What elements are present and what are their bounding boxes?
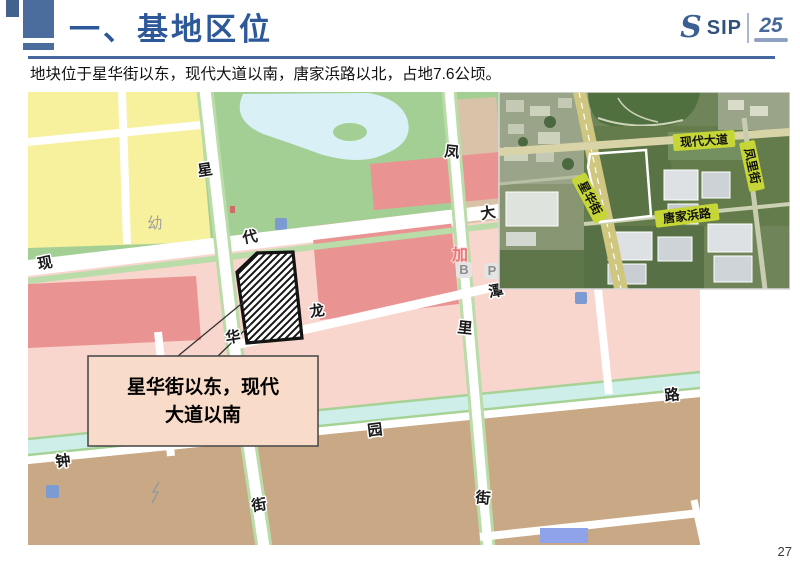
sip-logo-mark-icon: S [680, 13, 702, 43]
poi-kindergarten-label: 幼 [147, 215, 162, 232]
sip-logo-text: SIP [707, 17, 742, 40]
anniversary-underline [754, 38, 788, 42]
satellite-building [506, 232, 536, 246]
lake-island [333, 123, 367, 141]
header-rule [28, 56, 775, 59]
map-svg: B P 星华街以东，现代 大道以南 星 华 街 现 代 大 [28, 92, 790, 545]
satellite-building [506, 192, 558, 226]
anniversary-mark: 25 [754, 15, 788, 42]
street-label-xinghua-2: 华 [224, 327, 242, 347]
satellite-building [728, 100, 744, 110]
street-label-xiandai-2: 代 [240, 227, 259, 248]
zone-blue-lot [540, 528, 588, 543]
poi-dot [230, 206, 235, 213]
street-label-xiandai-1: 现 [36, 254, 54, 273]
poi-p-label: P [488, 263, 497, 278]
header-accent-bar [23, 43, 54, 50]
header-accent-square-edge [6, 0, 19, 17]
street-label-fengli-1: 凤 [444, 143, 461, 161]
street-label-fengli-3: 街 [474, 488, 492, 508]
parking-icon [46, 485, 59, 498]
satellite-field [499, 250, 589, 289]
street-label-zhongyuan-1: 钟 [54, 451, 71, 471]
callout-line1: 星华街以东，现代 [127, 375, 279, 398]
satellite-building [750, 106, 768, 116]
street-label-fengli-2: 里 [457, 319, 474, 337]
slide-subtitle: 地块位于星华街以东，现代大道以南，唐家浜路以北，占地7.6公顷。 [30, 62, 770, 84]
poi-b-label: B [459, 262, 468, 277]
header-accent-square [23, 0, 54, 38]
street-label-xiandai-3: 大 [479, 203, 497, 223]
street-label-zhongyuan-2: 园 [367, 421, 384, 440]
street-label-longtan-1: 龙 [307, 301, 326, 321]
sip-logo: S SIP 25 [680, 8, 788, 48]
site-parcel [237, 252, 302, 343]
street-label-xinghua-3: 街 [249, 495, 268, 515]
satellite-inset [499, 92, 790, 289]
parking-icon [575, 292, 587, 304]
street-label-xinghua-1: 星 [196, 161, 213, 180]
page-number: 27 [778, 544, 792, 559]
poi-gas-label: 加 [451, 246, 468, 264]
logo-divider [747, 13, 749, 43]
location-map: B P 星华街以东，现代 大道以南 星 华 街 现 代 大 [28, 92, 790, 550]
zone-red-west [28, 276, 201, 348]
callout-box: 星华街以东，现代 大道以南 [88, 356, 318, 446]
page-title: 一、基地区位 [69, 4, 273, 49]
residential-zone-yellow [28, 92, 211, 248]
callout-line2: 大道以南 [165, 403, 241, 426]
parking-icon [275, 218, 287, 230]
